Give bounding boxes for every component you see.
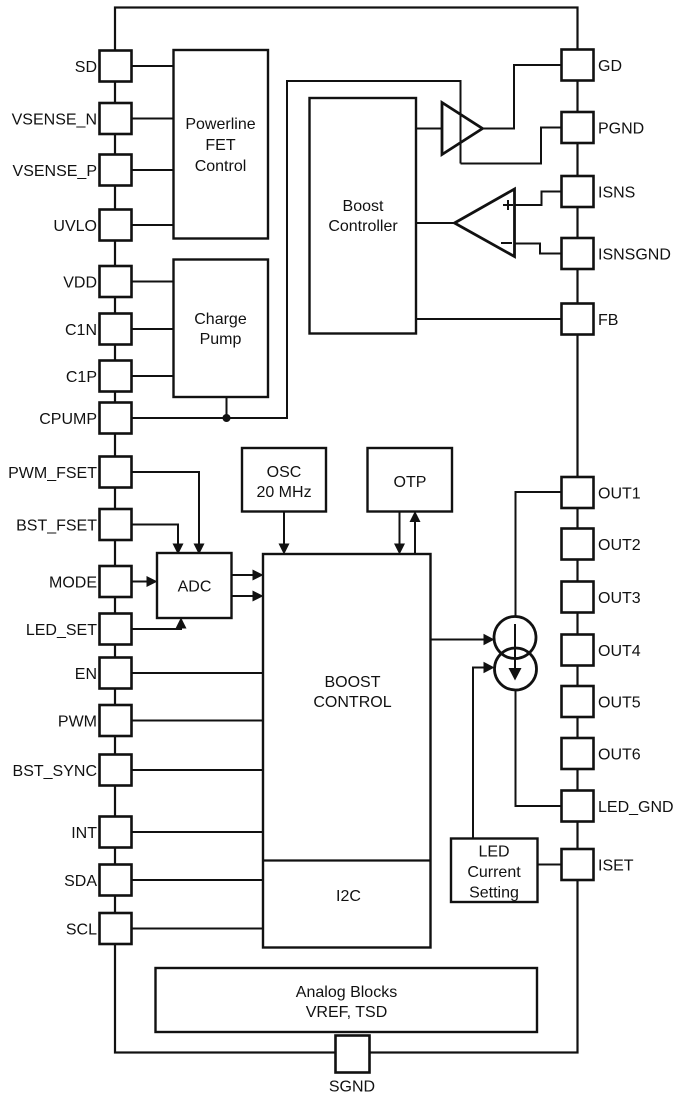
svg-text:ADC: ADC: [178, 578, 212, 595]
svg-text:Boost: Boost: [343, 198, 384, 215]
svg-text:Current: Current: [467, 864, 521, 881]
svg-text:Pump: Pump: [200, 331, 242, 348]
svg-text:LED_GND: LED_GND: [598, 799, 674, 816]
svg-text:OUT2: OUT2: [598, 537, 641, 554]
svg-text:EN: EN: [75, 666, 97, 683]
svg-text:VREF, TSD: VREF, TSD: [306, 1004, 388, 1021]
svg-text:UVLO: UVLO: [53, 218, 97, 235]
svg-text:CPUMP: CPUMP: [39, 411, 97, 428]
svg-text:FET: FET: [205, 137, 235, 154]
svg-text:PWM_FSET: PWM_FSET: [8, 465, 97, 482]
svg-text:OSC: OSC: [267, 464, 302, 481]
svg-text:I2C: I2C: [336, 888, 361, 905]
svg-text:BST_FSET: BST_FSET: [16, 517, 97, 534]
svg-text:20 MHz: 20 MHz: [256, 484, 311, 501]
svg-text:PGND: PGND: [598, 120, 644, 137]
svg-text:VDD: VDD: [63, 274, 97, 291]
svg-text:ISET: ISET: [598, 857, 634, 874]
svg-text:C1N: C1N: [65, 322, 97, 339]
svg-text:ISNS: ISNS: [598, 184, 635, 201]
svg-text:SGND: SGND: [329, 1079, 375, 1096]
svg-text:SD: SD: [75, 59, 97, 76]
svg-text:OUT4: OUT4: [598, 643, 641, 660]
svg-text:Controller: Controller: [328, 218, 398, 235]
svg-text:LED: LED: [478, 843, 509, 860]
svg-text:OTP: OTP: [394, 474, 427, 491]
svg-text:SDA: SDA: [64, 873, 97, 890]
svg-text:FB: FB: [598, 312, 618, 329]
svg-text:PWM: PWM: [58, 713, 97, 730]
svg-text:OUT3: OUT3: [598, 590, 641, 607]
svg-text:VSENSE_P: VSENSE_P: [13, 163, 97, 180]
svg-text:Analog Blocks: Analog Blocks: [296, 984, 397, 1001]
svg-text:Charge: Charge: [194, 311, 247, 328]
svg-text:MODE: MODE: [49, 574, 97, 591]
svg-text:ISNSGND: ISNSGND: [598, 246, 671, 263]
svg-text:LED_SET: LED_SET: [26, 622, 97, 639]
svg-text:Control: Control: [195, 158, 247, 175]
svg-text:BST_SYNC: BST_SYNC: [13, 763, 97, 780]
svg-text:BOOST: BOOST: [324, 674, 380, 691]
svg-text:INT: INT: [71, 825, 97, 842]
svg-text:VSENSE_N: VSENSE_N: [12, 111, 97, 128]
svg-text:GD: GD: [598, 58, 622, 75]
svg-text:Powerline: Powerline: [185, 116, 255, 133]
svg-text:SCL: SCL: [66, 921, 97, 938]
svg-text:CONTROL: CONTROL: [313, 694, 391, 711]
svg-text:OUT6: OUT6: [598, 746, 641, 763]
svg-text:OUT1: OUT1: [598, 485, 641, 502]
svg-text:OUT5: OUT5: [598, 694, 641, 711]
svg-text:Setting: Setting: [469, 884, 519, 901]
svg-text:C1P: C1P: [66, 369, 97, 386]
